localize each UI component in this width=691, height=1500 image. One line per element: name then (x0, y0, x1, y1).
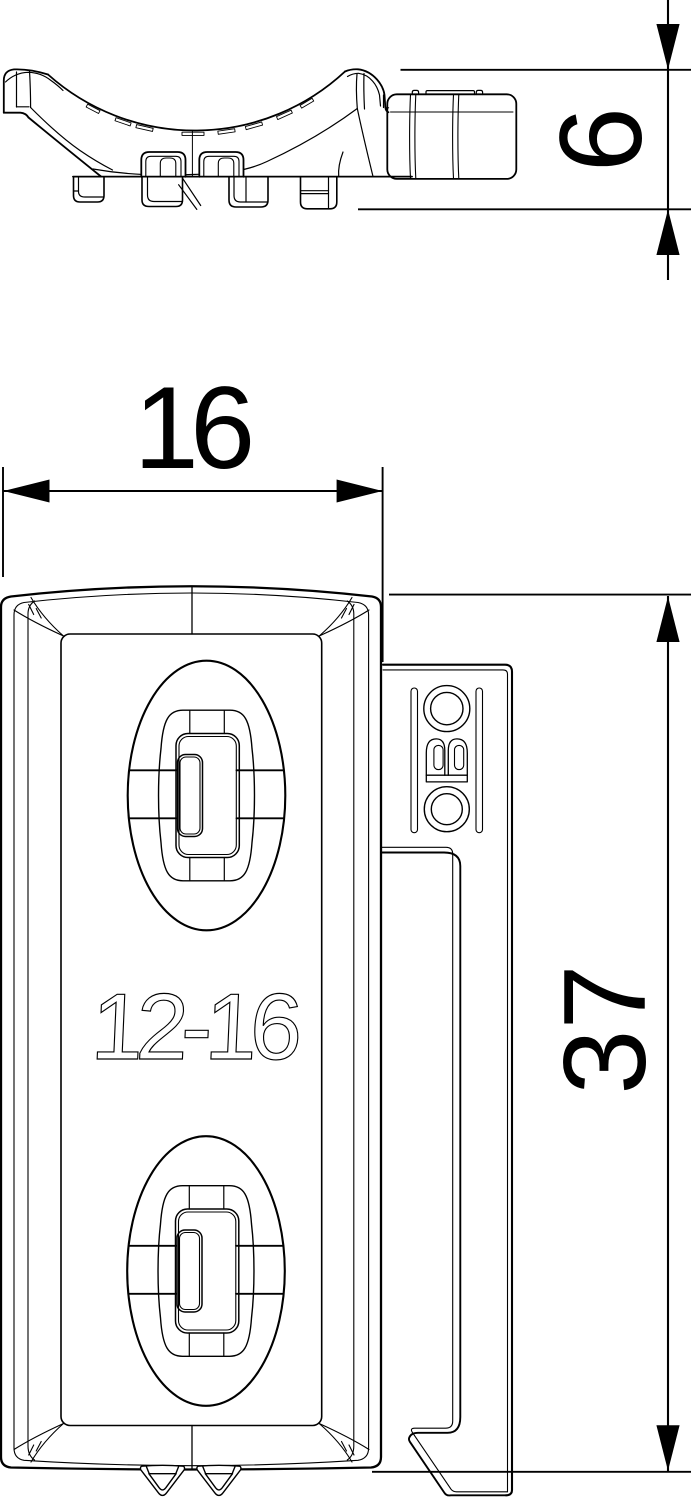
svg-text:16: 16 (134, 362, 256, 493)
svg-text:37: 37 (539, 964, 670, 1094)
svg-text:12-16: 12-16 (89, 974, 305, 1079)
svg-text:6: 6 (535, 107, 666, 172)
